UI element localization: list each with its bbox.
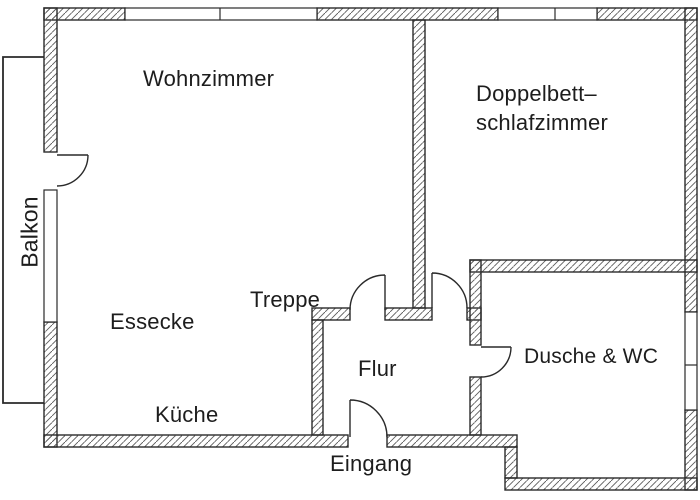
- room-label-schlafzimmer-line2: schlafzimmer: [476, 108, 608, 137]
- wall-dusche-west-upper: [470, 260, 481, 345]
- window-top-schlafzimmer: [498, 8, 597, 20]
- room-label-schlafzimmer-line1: Doppelbett–: [476, 79, 608, 108]
- wall-dusche-west-lower: [470, 377, 481, 435]
- room-label-flur: Flur: [358, 356, 397, 382]
- entrance-door: [350, 400, 387, 437]
- room-label-balkon: Balkon: [17, 196, 44, 268]
- balcony-door: [57, 155, 88, 186]
- wall-left-lower: [44, 322, 57, 447]
- room-label-eingang: Eingang: [330, 451, 412, 477]
- wall-divider-wohn-schlaf: [413, 20, 425, 308]
- window-top-wohnzimmer: [125, 8, 317, 20]
- room-label-essecke: Essecke: [110, 309, 195, 335]
- floor-plan-drawing: [0, 0, 700, 500]
- wall-flur-top-b: [385, 308, 432, 320]
- room-label-wohnzimmer: Wohnzimmer: [143, 66, 274, 92]
- room-label-kueche: Küche: [155, 402, 218, 428]
- wall-bottom-left: [44, 435, 348, 447]
- wall-dusche-top: [470, 260, 697, 272]
- wall-top-right: [597, 8, 697, 20]
- window-left-balcony-glazing: [44, 190, 57, 322]
- schlafzimmer-door: [432, 273, 467, 308]
- wall-flur-left: [312, 320, 323, 435]
- floor-plan: Wohnzimmer Doppelbett– schlafzimmer Balk…: [0, 0, 700, 500]
- wall-bottom-step: [505, 447, 517, 478]
- wall-top-middle: [317, 8, 498, 20]
- wall-bottom-right: [505, 478, 697, 490]
- room-label-treppe: Treppe: [250, 287, 320, 313]
- wohnzimmer-flur-door: [350, 275, 385, 310]
- room-label-schlafzimmer: Doppelbett– schlafzimmer: [476, 79, 608, 137]
- wall-left-upper: [44, 8, 57, 152]
- window-right-dusche: [685, 312, 697, 410]
- room-label-dusche-wc: Dusche & WC: [524, 345, 658, 369]
- wall-bottom-middle: [387, 435, 517, 447]
- dusche-wc-door: [481, 347, 511, 377]
